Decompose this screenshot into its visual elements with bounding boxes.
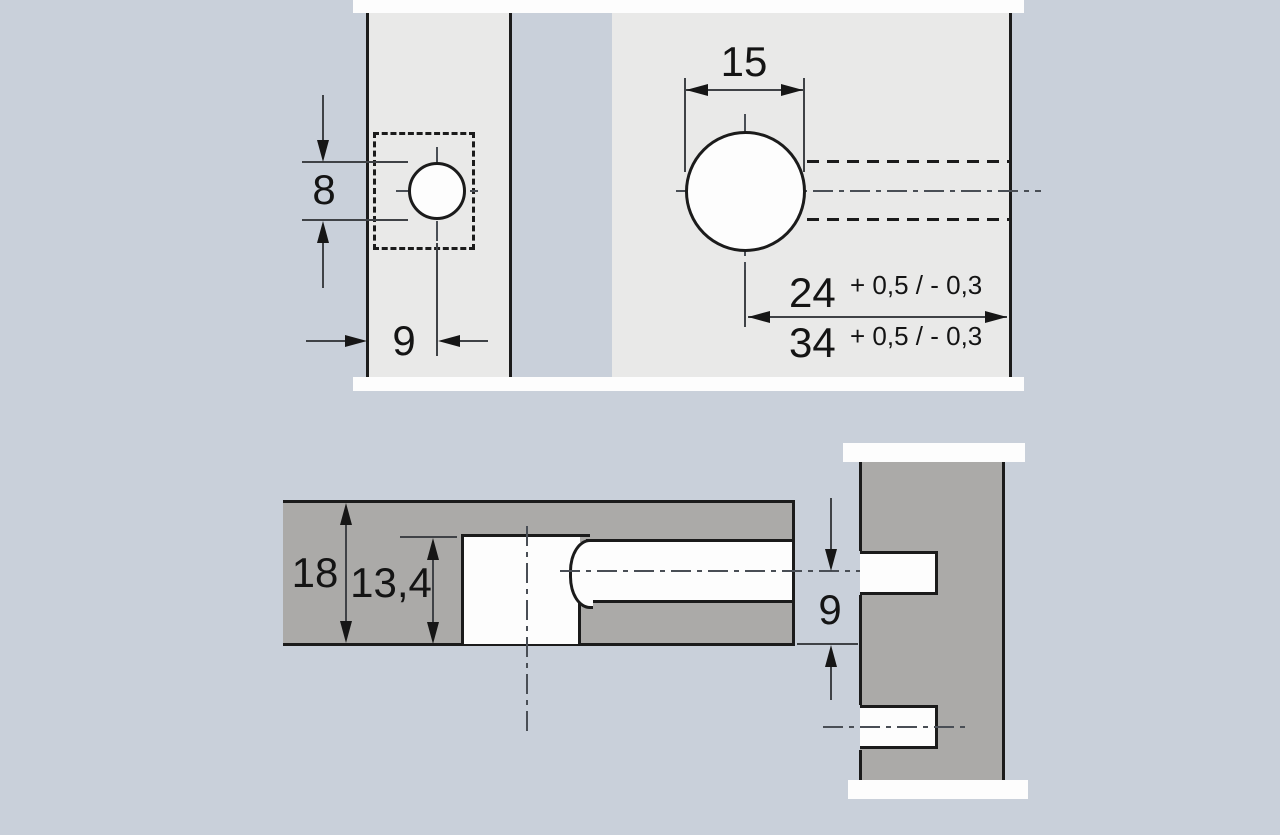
dim8-arrow-down xyxy=(317,140,329,162)
dim24-label: 24 xyxy=(789,272,836,314)
dim18-arrow-up xyxy=(340,503,352,525)
dim134-arrow-up xyxy=(427,538,439,560)
cup-bore-pocket xyxy=(463,537,580,644)
dim2434-line xyxy=(748,316,1007,318)
dim9s-arrow-down xyxy=(825,549,837,571)
dim15-arrow-right xyxy=(781,84,803,96)
dim9s-ext-line xyxy=(797,643,858,645)
cup-bore-centerline xyxy=(526,526,528,734)
dim18-label: 18 xyxy=(290,552,340,594)
dim24-tolerance: + 0,5 / - 0,3 xyxy=(850,272,982,298)
dim134-arrow-down xyxy=(427,622,439,644)
dim9s-leader-top xyxy=(830,498,832,550)
side-panel-hole-lower-centerline xyxy=(823,726,965,728)
arm-bore-top-line xyxy=(586,539,792,542)
dim8-arrow-up xyxy=(317,221,329,243)
dim9f-line-right xyxy=(460,340,488,342)
side-panel-break-top xyxy=(843,443,1025,462)
dim9s-label: 9 xyxy=(805,589,855,631)
side-panel-left-edge-2 xyxy=(859,595,862,705)
dim34-label: 34 xyxy=(789,322,836,364)
side-panel-left-edge-1 xyxy=(859,462,862,551)
dim134-label: 13,4 xyxy=(346,562,436,604)
slot-hidden-edge-bottom xyxy=(807,218,1011,221)
side-panel-hole-upper xyxy=(860,551,938,595)
dim9s-leader-bottom xyxy=(830,667,832,700)
cup-hole-circle xyxy=(685,131,806,252)
dim2434-arrow-left xyxy=(748,311,770,323)
break-band-top xyxy=(353,0,1024,13)
section-door-top-edge xyxy=(283,500,795,503)
side-panel-break-bottom xyxy=(848,780,1028,799)
dim15-ext-right xyxy=(803,78,805,172)
panel-front-left-edge-left xyxy=(366,13,369,377)
slot-hidden-edge-top xyxy=(807,160,1011,163)
arm-bore-bottom-line xyxy=(586,600,792,603)
dim18-arrow-down xyxy=(340,621,352,643)
panel-front-right-edge xyxy=(1009,13,1012,377)
dim8-leader-bottom xyxy=(322,243,324,288)
side-panel-left-edge-3 xyxy=(859,750,862,780)
cup-bore-left-line xyxy=(461,534,464,644)
dim9s-arrow-up xyxy=(825,645,837,667)
break-band-middle xyxy=(353,377,1024,391)
side-panel-right-edge xyxy=(1002,462,1005,780)
dim9f-line-left xyxy=(306,340,347,342)
dim15-label: 15 xyxy=(714,41,774,83)
arm-bore-channel xyxy=(580,542,792,602)
dim9f-arrow-left xyxy=(438,335,460,347)
dim9f-label: 9 xyxy=(379,320,429,362)
section-door-end-edge xyxy=(792,500,795,646)
technical-drawing-canvas: 8 9 15 24 + 0,5 / - 0,3 34 + 0,5 / - 0,3 xyxy=(0,0,1280,835)
dim15-arrow-left xyxy=(686,84,708,96)
cup-centerline-right xyxy=(813,190,1041,192)
pilot-hole-circle xyxy=(408,162,466,220)
dim8-leader-top xyxy=(322,95,324,141)
dim8-label: 8 xyxy=(299,169,349,211)
dim34-tolerance: + 0,5 / - 0,3 xyxy=(850,323,982,349)
cup-bore-right-lower-line xyxy=(578,602,581,646)
panel-front-left-edge-right xyxy=(509,13,512,377)
cup-hole-extension-line xyxy=(744,270,746,327)
dim9f-arrow-right xyxy=(345,335,367,347)
dim2434-arrow-right xyxy=(985,311,1007,323)
